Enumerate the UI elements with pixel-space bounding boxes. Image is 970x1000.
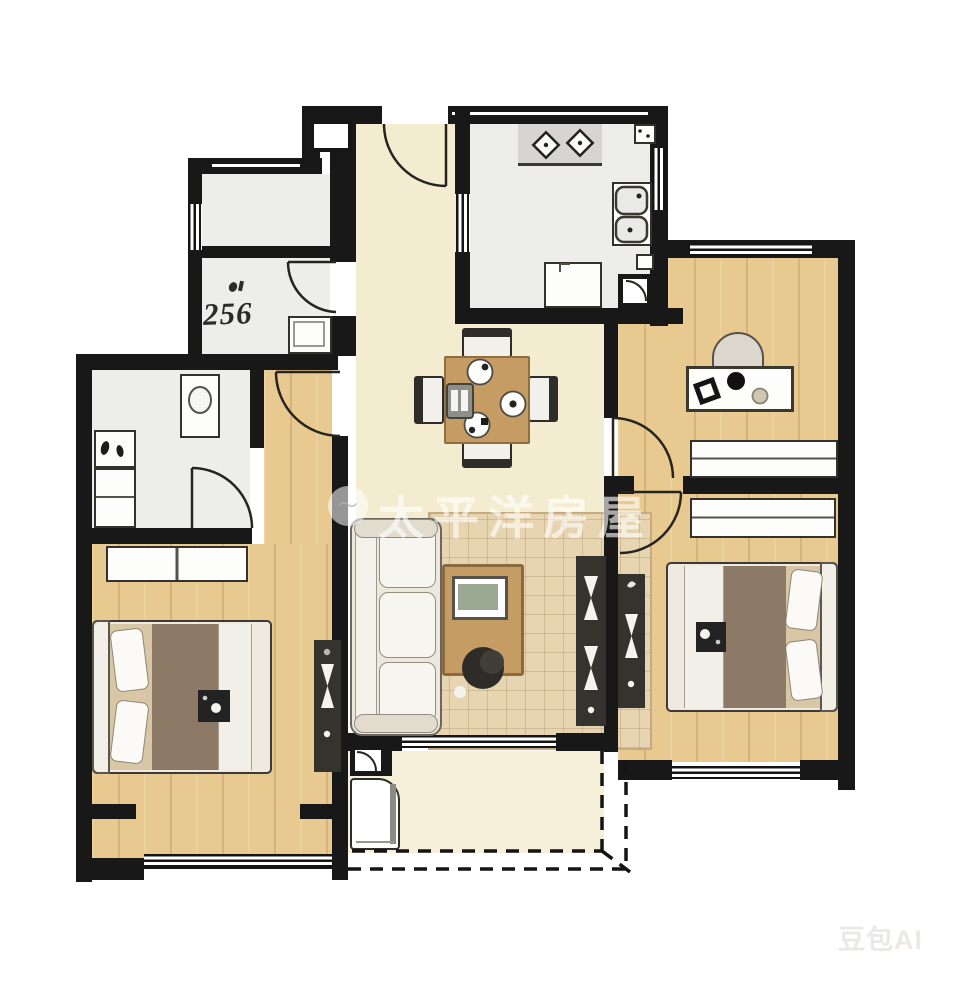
kitchen-small-box <box>636 254 654 270</box>
floor-utility-room <box>202 174 330 248</box>
wall <box>188 158 202 204</box>
window <box>188 204 201 250</box>
watermark-center-text: 太平洋房屋 <box>378 482 653 548</box>
floor-entry-hall <box>356 124 456 324</box>
kitchen-sliding-door <box>456 194 469 252</box>
stove-counter <box>518 124 602 166</box>
sofa-backrest <box>355 526 377 728</box>
wall <box>618 760 672 780</box>
window <box>672 766 800 779</box>
tv-cabinet-living <box>576 556 606 726</box>
wall <box>92 804 136 819</box>
watermark-logo: 〜 <box>328 486 368 526</box>
wall <box>455 308 683 324</box>
wall <box>838 240 855 790</box>
wall <box>604 324 618 418</box>
window <box>690 243 812 256</box>
bed-left-decor-tray <box>198 690 230 722</box>
wall <box>448 106 660 124</box>
wall <box>330 316 356 356</box>
wall <box>90 528 252 544</box>
sofa-armrest <box>354 714 438 733</box>
wall <box>683 476 855 494</box>
wall <box>188 250 202 370</box>
wall <box>76 858 144 880</box>
bedroom-right-cabinet <box>690 498 836 538</box>
wall <box>76 354 338 370</box>
sofa-cushion <box>379 592 436 658</box>
bed-right-decor-tray <box>696 622 726 652</box>
dining-chair-bottom <box>462 440 512 468</box>
wall <box>300 804 332 819</box>
coffee-table-frame-art <box>458 584 498 610</box>
wc-area-label: 256 <box>202 295 253 333</box>
window-slit <box>212 164 300 167</box>
bath-vanity <box>180 374 220 438</box>
floor-bedroom-left-vestibule <box>264 370 332 544</box>
dresser <box>106 546 248 582</box>
balcony-dashed-corner <box>602 851 630 872</box>
bed-right-headboard <box>820 562 838 712</box>
wc-washbasin <box>288 316 332 354</box>
water-heater <box>634 124 656 144</box>
wall <box>202 246 332 258</box>
dining-chair-top <box>462 328 512 358</box>
bed-left-headboard <box>92 620 110 774</box>
watermark-bottom-right: 豆包AI <box>838 918 923 957</box>
balcony-drain-icon-inner <box>355 750 381 771</box>
bed-right-duvet <box>724 566 786 708</box>
balcony-sliding-window <box>402 735 556 748</box>
wall <box>455 252 470 308</box>
floor-plan: 256 <box>0 0 970 1000</box>
tv-cabinet-bedroom-left <box>314 640 341 772</box>
fridge <box>544 262 602 308</box>
wall <box>76 354 92 882</box>
wardrobe-bedroom-right <box>618 574 645 708</box>
floor-study-vestibule <box>618 324 670 476</box>
bath-cabinet <box>94 468 136 528</box>
window <box>144 854 332 869</box>
dining-chair-right <box>528 376 558 422</box>
study-closet <box>690 440 838 478</box>
wall <box>250 368 264 448</box>
wall <box>556 733 606 751</box>
wall <box>455 106 470 194</box>
desk <box>686 366 794 412</box>
toilet <box>94 430 136 468</box>
dining-chair-left <box>414 376 444 424</box>
wall <box>800 760 840 780</box>
window-slit <box>452 112 648 115</box>
dining-table <box>444 356 530 444</box>
floor-drain-icon-inner <box>623 279 647 303</box>
sofa-cushion <box>379 662 436 722</box>
shoe-cabinet <box>310 120 352 152</box>
washing-machine-shade <box>390 784 396 844</box>
window <box>652 148 666 210</box>
kitchen-sink-counter <box>612 182 652 246</box>
